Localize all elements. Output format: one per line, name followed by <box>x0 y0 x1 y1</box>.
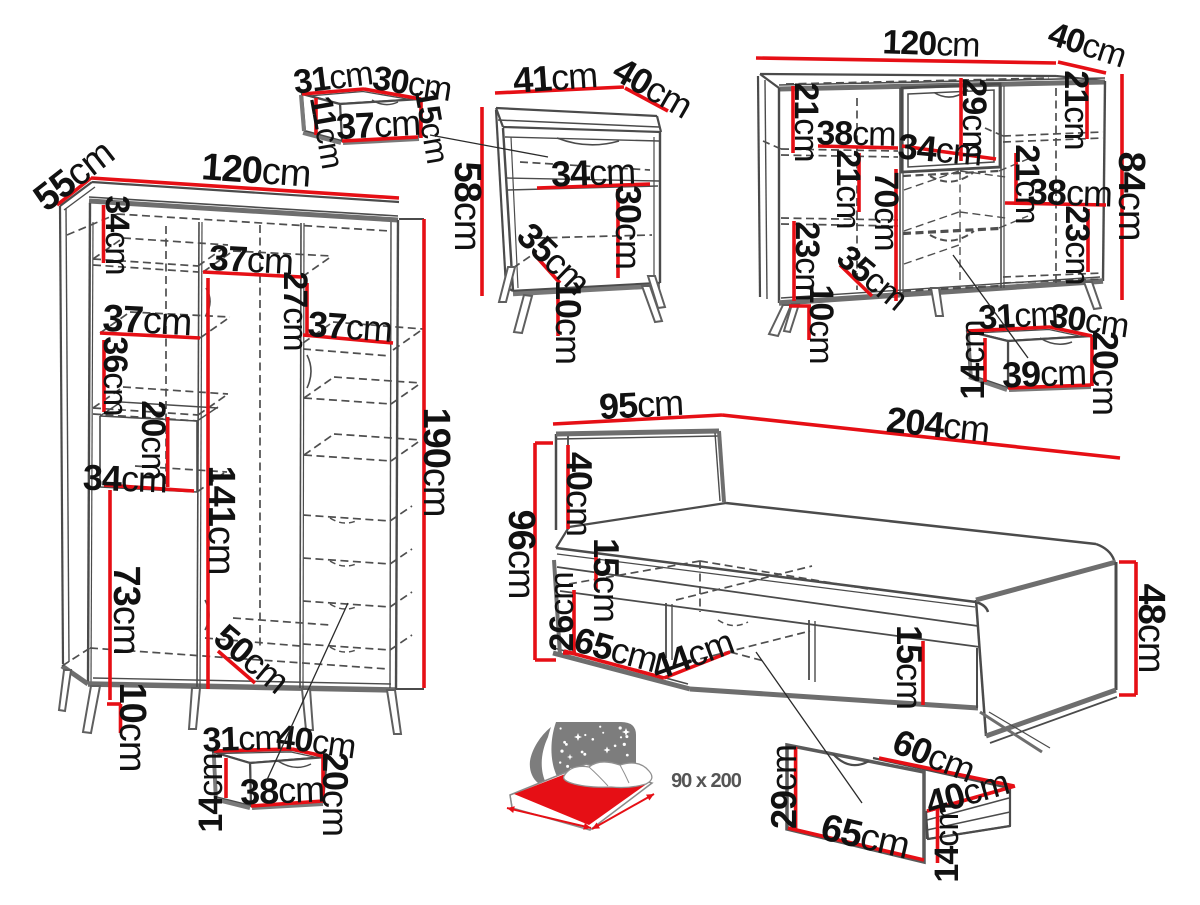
svg-text:29cm: 29cm <box>763 745 804 829</box>
svg-text:14cm: 14cm <box>928 803 966 882</box>
svg-text:23cm: 23cm <box>1058 205 1096 284</box>
svg-text:40cm: 40cm <box>560 452 601 536</box>
svg-text:21cm: 21cm <box>1057 70 1095 149</box>
svg-text:34cm: 34cm <box>82 456 167 500</box>
svg-text:48cm: 48cm <box>1130 584 1172 673</box>
svg-text:141cm: 141cm <box>200 465 242 574</box>
svg-text:120cm: 120cm <box>200 146 312 196</box>
svg-text:21cm: 21cm <box>829 149 867 228</box>
svg-text:29cm: 29cm <box>955 78 993 157</box>
svg-text:30cm: 30cm <box>609 185 650 269</box>
svg-text:73cm: 73cm <box>105 566 147 655</box>
svg-text:37cm: 37cm <box>307 303 394 350</box>
svg-text:90 x 200: 90 x 200 <box>671 770 742 792</box>
svg-text:36cm: 36cm <box>96 336 134 415</box>
svg-text:84cm: 84cm <box>1110 152 1152 241</box>
svg-text:31cm: 31cm <box>202 719 282 760</box>
svg-text:15cm: 15cm <box>587 538 628 622</box>
svg-text:96cm: 96cm <box>500 510 542 599</box>
svg-text:34cm: 34cm <box>98 195 136 274</box>
svg-text:41cm: 41cm <box>512 54 599 101</box>
svg-text:15cm: 15cm <box>890 625 931 709</box>
svg-text:20cm: 20cm <box>316 752 357 836</box>
svg-text:10cm: 10cm <box>111 683 153 772</box>
svg-text:38cm: 38cm <box>816 114 896 153</box>
svg-text:14cm: 14cm <box>954 320 992 399</box>
svg-text:14cm: 14cm <box>192 753 230 832</box>
svg-text:38cm: 38cm <box>239 768 324 812</box>
svg-text:39cm: 39cm <box>1001 351 1086 395</box>
svg-text:10cm: 10cm <box>802 284 840 363</box>
svg-text:20cm: 20cm <box>1086 331 1127 415</box>
svg-text:190cm: 190cm <box>415 407 457 516</box>
svg-text:37cm: 37cm <box>335 101 421 146</box>
svg-text:58cm: 58cm <box>446 162 488 251</box>
svg-text:70cm: 70cm <box>867 171 905 250</box>
svg-text:95cm: 95cm <box>598 381 684 426</box>
svg-text:120cm: 120cm <box>882 23 980 64</box>
svg-text:10cm: 10cm <box>549 280 590 364</box>
